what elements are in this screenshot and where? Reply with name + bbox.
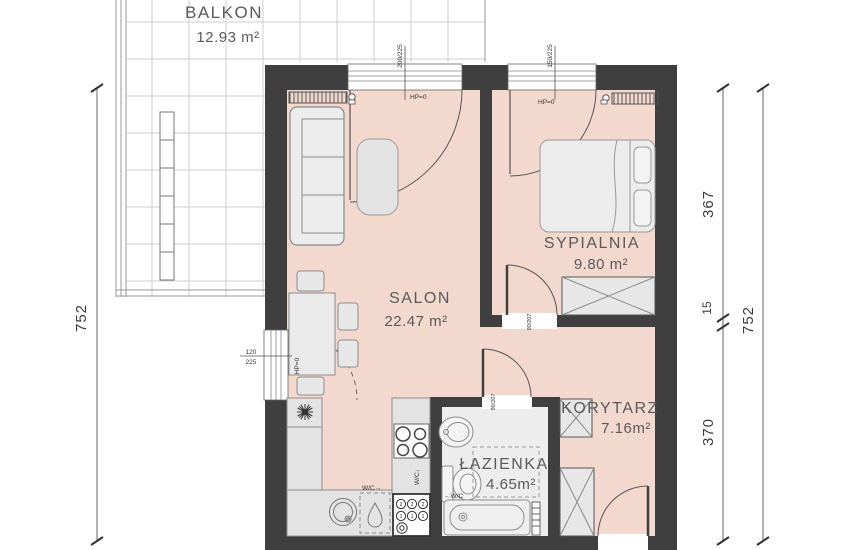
window-salon-size: 200/225 <box>397 44 404 68</box>
kitchen-star-symbol <box>297 404 313 420</box>
balcony-area-label: 12.93 m² <box>196 29 259 46</box>
dim-left-total: 752 <box>73 304 90 332</box>
wardrobe-bedroom <box>562 277 655 315</box>
hall-label: KORYTARZ <box>561 400 659 417</box>
sill-label-balcony-door: HP=0 <box>294 357 301 374</box>
wall-bathroom-right <box>548 397 560 545</box>
balcony-door-height: 225 <box>246 359 257 366</box>
hall-area-label: 7.16m² <box>601 420 651 437</box>
wall-bedroom-hall <box>557 315 657 327</box>
towel-radiator <box>532 502 540 535</box>
dim-right-mid: 15 <box>700 301 714 315</box>
bedroom-door-size: 90/207 <box>527 314 533 331</box>
sill-label-salon: HP=0 <box>410 94 427 101</box>
balcony-door-width: 120 <box>246 349 257 356</box>
wall-bathroom-left <box>430 397 442 545</box>
knob-label: 2 <box>411 502 414 508</box>
bedroom-area-label: 9.80 m² <box>574 256 628 273</box>
radiator-salon <box>289 92 355 104</box>
balcony-label: BALKON <box>185 3 263 22</box>
bathroom-area-label: 4.65m² <box>486 476 536 493</box>
dim-right-bottom: 370 <box>700 418 717 446</box>
balcony-railing-posts <box>160 112 174 280</box>
bathroom-label: ŁAZIENKA <box>459 456 548 473</box>
knob-label: 1 <box>411 514 414 520</box>
bed <box>540 140 655 232</box>
knob-label: 2 <box>400 502 403 508</box>
knob-label: 1 <box>400 514 403 520</box>
sill-label-bedroom: HP=0 <box>538 99 555 106</box>
bedroom-label: SYPIALNIA <box>544 235 640 252</box>
hob <box>394 424 429 458</box>
knob-label: 1 <box>422 514 425 520</box>
floorplan-page: BALKON 12.93 m² <box>0 0 850 550</box>
salon-label: SALON <box>389 290 451 307</box>
salon-area-label: 22.47 m² <box>384 313 447 330</box>
washer: 2 2 2 1 1 1 <box>393 494 430 536</box>
wc-label-hob: W/C↓ <box>414 469 421 485</box>
wc-label-washer: W/C→ <box>362 485 381 492</box>
shaft-lower <box>560 468 594 536</box>
wc-label-tub: ←W/C <box>444 493 463 500</box>
knob-label: 2 <box>422 502 425 508</box>
bathtub <box>444 500 530 535</box>
sofa <box>290 107 344 245</box>
bathroom-door-size: 90/207 <box>491 394 497 411</box>
floorplan-drawing: BALKON 12.93 m² <box>0 0 850 550</box>
dim-right-total: 752 <box>740 306 757 334</box>
wall-salon-bedroom <box>480 90 492 317</box>
coffee-table <box>357 139 398 215</box>
dim-right-top: 367 <box>700 190 717 218</box>
window-bedroom-size: 150/225 <box>547 44 554 68</box>
washbasin <box>439 417 473 447</box>
